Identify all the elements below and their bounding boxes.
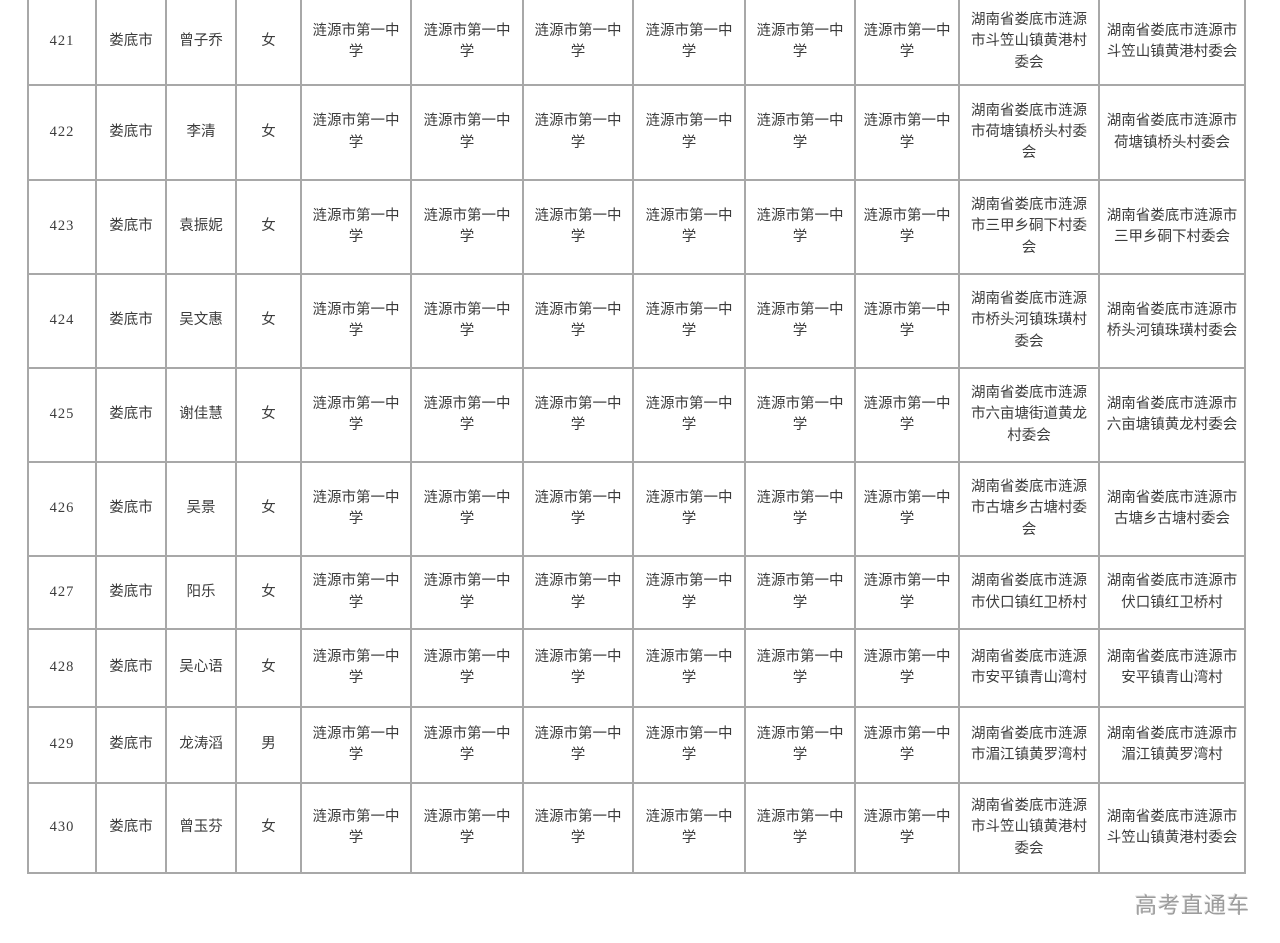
school-cell: 涟源市第一中学 bbox=[301, 0, 411, 85]
school-cell: 涟源市第一中学 bbox=[411, 0, 523, 85]
school-cell: 涟源市第一中学 bbox=[523, 629, 633, 707]
school-cell: 涟源市第一中学 bbox=[523, 0, 633, 85]
address-cell: 湖南省娄底市涟源市六亩塘街道黄龙村委会 bbox=[959, 368, 1099, 462]
school-cell: 涟源市第一中学 bbox=[855, 707, 959, 783]
school-cell: 涟源市第一中学 bbox=[633, 556, 745, 629]
school-cell: 涟源市第一中学 bbox=[633, 783, 745, 873]
school-cell: 涟源市第一中学 bbox=[633, 0, 745, 85]
name-cell: 龙涛滔 bbox=[166, 707, 236, 783]
table-container: 421娄底市曾子乔女涟源市第一中学涟源市第一中学涟源市第一中学涟源市第一中学涟源… bbox=[27, 0, 1246, 874]
address-cell: 湖南省娄底市涟源市古塘乡古塘村委会 bbox=[1099, 462, 1245, 556]
school-cell: 涟源市第一中学 bbox=[855, 556, 959, 629]
serial-cell: 428 bbox=[28, 629, 96, 707]
gender-cell: 女 bbox=[236, 629, 301, 707]
address-cell: 湖南省娄底市涟源市古塘乡古塘村委会 bbox=[959, 462, 1099, 556]
gender-cell: 女 bbox=[236, 0, 301, 85]
name-cell: 吴文惠 bbox=[166, 274, 236, 368]
city-cell: 娄底市 bbox=[96, 707, 166, 783]
school-cell: 涟源市第一中学 bbox=[301, 368, 411, 462]
school-cell: 涟源市第一中学 bbox=[301, 707, 411, 783]
gender-cell: 女 bbox=[236, 274, 301, 368]
school-cell: 涟源市第一中学 bbox=[745, 629, 855, 707]
address-cell: 湖南省娄底市涟源市三甲乡硐下村委会 bbox=[1099, 180, 1245, 274]
address-cell: 湖南省娄底市涟源市桥头河镇珠璜村委会 bbox=[959, 274, 1099, 368]
student-table: 421娄底市曾子乔女涟源市第一中学涟源市第一中学涟源市第一中学涟源市第一中学涟源… bbox=[27, 0, 1246, 874]
school-cell: 涟源市第一中学 bbox=[411, 274, 523, 368]
school-cell: 涟源市第一中学 bbox=[411, 462, 523, 556]
table-row: 424娄底市吴文惠女涟源市第一中学涟源市第一中学涟源市第一中学涟源市第一中学涟源… bbox=[28, 274, 1245, 368]
address-cell: 湖南省娄底市涟源市六亩塘镇黄龙村委会 bbox=[1099, 368, 1245, 462]
name-cell: 曾玉芬 bbox=[166, 783, 236, 873]
serial-cell: 430 bbox=[28, 783, 96, 873]
school-cell: 涟源市第一中学 bbox=[745, 180, 855, 274]
school-cell: 涟源市第一中学 bbox=[301, 180, 411, 274]
school-cell: 涟源市第一中学 bbox=[745, 368, 855, 462]
page: 421娄底市曾子乔女涟源市第一中学涟源市第一中学涟源市第一中学涟源市第一中学涟源… bbox=[0, 0, 1280, 943]
school-cell: 涟源市第一中学 bbox=[523, 274, 633, 368]
city-cell: 娄底市 bbox=[96, 0, 166, 85]
address-cell: 湖南省娄底市涟源市伏口镇红卫桥村 bbox=[959, 556, 1099, 629]
city-cell: 娄底市 bbox=[96, 274, 166, 368]
school-cell: 涟源市第一中学 bbox=[411, 368, 523, 462]
address-cell: 湖南省娄底市涟源市伏口镇红卫桥村 bbox=[1099, 556, 1245, 629]
school-cell: 涟源市第一中学 bbox=[855, 368, 959, 462]
school-cell: 涟源市第一中学 bbox=[855, 0, 959, 85]
watermark: 高考直通车 bbox=[1135, 888, 1250, 920]
address-cell: 湖南省娄底市涟源市荷塘镇桥头村委会 bbox=[1099, 85, 1245, 180]
name-cell: 李清 bbox=[166, 85, 236, 180]
gender-cell: 女 bbox=[236, 85, 301, 180]
school-cell: 涟源市第一中学 bbox=[523, 368, 633, 462]
address-cell: 湖南省娄底市涟源市斗笠山镇黄港村委会 bbox=[1099, 0, 1245, 85]
school-cell: 涟源市第一中学 bbox=[633, 629, 745, 707]
school-cell: 涟源市第一中学 bbox=[301, 85, 411, 180]
name-cell: 吴景 bbox=[166, 462, 236, 556]
address-cell: 湖南省娄底市涟源市斗笠山镇黄港村委会 bbox=[959, 0, 1099, 85]
serial-cell: 426 bbox=[28, 462, 96, 556]
city-cell: 娄底市 bbox=[96, 85, 166, 180]
city-cell: 娄底市 bbox=[96, 462, 166, 556]
school-cell: 涟源市第一中学 bbox=[523, 462, 633, 556]
name-cell: 谢佳慧 bbox=[166, 368, 236, 462]
address-cell: 湖南省娄底市涟源市安平镇青山湾村 bbox=[1099, 629, 1245, 707]
school-cell: 涟源市第一中学 bbox=[301, 462, 411, 556]
school-cell: 涟源市第一中学 bbox=[633, 180, 745, 274]
school-cell: 涟源市第一中学 bbox=[523, 783, 633, 873]
address-cell: 湖南省娄底市涟源市湄江镇黄罗湾村 bbox=[959, 707, 1099, 783]
address-cell: 湖南省娄底市涟源市湄江镇黄罗湾村 bbox=[1099, 707, 1245, 783]
school-cell: 涟源市第一中学 bbox=[745, 707, 855, 783]
school-cell: 涟源市第一中学 bbox=[633, 707, 745, 783]
school-cell: 涟源市第一中学 bbox=[745, 556, 855, 629]
name-cell: 阳乐 bbox=[166, 556, 236, 629]
gender-cell: 男 bbox=[236, 707, 301, 783]
school-cell: 涟源市第一中学 bbox=[855, 180, 959, 274]
school-cell: 涟源市第一中学 bbox=[855, 462, 959, 556]
gender-cell: 女 bbox=[236, 783, 301, 873]
serial-cell: 423 bbox=[28, 180, 96, 274]
school-cell: 涟源市第一中学 bbox=[745, 85, 855, 180]
school-cell: 涟源市第一中学 bbox=[411, 85, 523, 180]
name-cell: 袁振妮 bbox=[166, 180, 236, 274]
table-row: 430娄底市曾玉芬女涟源市第一中学涟源市第一中学涟源市第一中学涟源市第一中学涟源… bbox=[28, 783, 1245, 873]
school-cell: 涟源市第一中学 bbox=[411, 783, 523, 873]
table-row: 427娄底市阳乐女涟源市第一中学涟源市第一中学涟源市第一中学涟源市第一中学涟源市… bbox=[28, 556, 1245, 629]
serial-cell: 421 bbox=[28, 0, 96, 85]
school-cell: 涟源市第一中学 bbox=[301, 556, 411, 629]
address-cell: 湖南省娄底市涟源市荷塘镇桥头村委会 bbox=[959, 85, 1099, 180]
school-cell: 涟源市第一中学 bbox=[855, 274, 959, 368]
city-cell: 娄底市 bbox=[96, 180, 166, 274]
school-cell: 涟源市第一中学 bbox=[745, 0, 855, 85]
serial-cell: 425 bbox=[28, 368, 96, 462]
school-cell: 涟源市第一中学 bbox=[633, 274, 745, 368]
school-cell: 涟源市第一中学 bbox=[301, 783, 411, 873]
school-cell: 涟源市第一中学 bbox=[523, 707, 633, 783]
school-cell: 涟源市第一中学 bbox=[411, 180, 523, 274]
school-cell: 涟源市第一中学 bbox=[301, 274, 411, 368]
table-row: 425娄底市谢佳慧女涟源市第一中学涟源市第一中学涟源市第一中学涟源市第一中学涟源… bbox=[28, 368, 1245, 462]
school-cell: 涟源市第一中学 bbox=[523, 85, 633, 180]
gender-cell: 女 bbox=[236, 556, 301, 629]
school-cell: 涟源市第一中学 bbox=[411, 707, 523, 783]
table-row: 426娄底市吴景女涟源市第一中学涟源市第一中学涟源市第一中学涟源市第一中学涟源市… bbox=[28, 462, 1245, 556]
table-row: 421娄底市曾子乔女涟源市第一中学涟源市第一中学涟源市第一中学涟源市第一中学涟源… bbox=[28, 0, 1245, 85]
gender-cell: 女 bbox=[236, 180, 301, 274]
school-cell: 涟源市第一中学 bbox=[633, 462, 745, 556]
city-cell: 娄底市 bbox=[96, 368, 166, 462]
school-cell: 涟源市第一中学 bbox=[855, 85, 959, 180]
serial-cell: 422 bbox=[28, 85, 96, 180]
gender-cell: 女 bbox=[236, 462, 301, 556]
school-cell: 涟源市第一中学 bbox=[411, 556, 523, 629]
school-cell: 涟源市第一中学 bbox=[633, 368, 745, 462]
serial-cell: 424 bbox=[28, 274, 96, 368]
school-cell: 涟源市第一中学 bbox=[523, 556, 633, 629]
table-row: 428娄底市吴心语女涟源市第一中学涟源市第一中学涟源市第一中学涟源市第一中学涟源… bbox=[28, 629, 1245, 707]
city-cell: 娄底市 bbox=[96, 629, 166, 707]
school-cell: 涟源市第一中学 bbox=[411, 629, 523, 707]
gender-cell: 女 bbox=[236, 368, 301, 462]
name-cell: 吴心语 bbox=[166, 629, 236, 707]
serial-cell: 429 bbox=[28, 707, 96, 783]
school-cell: 涟源市第一中学 bbox=[745, 274, 855, 368]
school-cell: 涟源市第一中学 bbox=[855, 629, 959, 707]
serial-cell: 427 bbox=[28, 556, 96, 629]
city-cell: 娄底市 bbox=[96, 556, 166, 629]
school-cell: 涟源市第一中学 bbox=[633, 85, 745, 180]
table-row: 423娄底市袁振妮女涟源市第一中学涟源市第一中学涟源市第一中学涟源市第一中学涟源… bbox=[28, 180, 1245, 274]
table-row: 429娄底市龙涛滔男涟源市第一中学涟源市第一中学涟源市第一中学涟源市第一中学涟源… bbox=[28, 707, 1245, 783]
school-cell: 涟源市第一中学 bbox=[745, 783, 855, 873]
school-cell: 涟源市第一中学 bbox=[745, 462, 855, 556]
address-cell: 湖南省娄底市涟源市斗笠山镇黄港村委会 bbox=[1099, 783, 1245, 873]
address-cell: 湖南省娄底市涟源市斗笠山镇黄港村委会 bbox=[959, 783, 1099, 873]
city-cell: 娄底市 bbox=[96, 783, 166, 873]
address-cell: 湖南省娄底市涟源市安平镇青山湾村 bbox=[959, 629, 1099, 707]
name-cell: 曾子乔 bbox=[166, 0, 236, 85]
table-row: 422娄底市李清女涟源市第一中学涟源市第一中学涟源市第一中学涟源市第一中学涟源市… bbox=[28, 85, 1245, 180]
school-cell: 涟源市第一中学 bbox=[301, 629, 411, 707]
school-cell: 涟源市第一中学 bbox=[523, 180, 633, 274]
school-cell: 涟源市第一中学 bbox=[855, 783, 959, 873]
address-cell: 湖南省娄底市涟源市三甲乡硐下村委会 bbox=[959, 180, 1099, 274]
address-cell: 湖南省娄底市涟源市桥头河镇珠璜村委会 bbox=[1099, 274, 1245, 368]
